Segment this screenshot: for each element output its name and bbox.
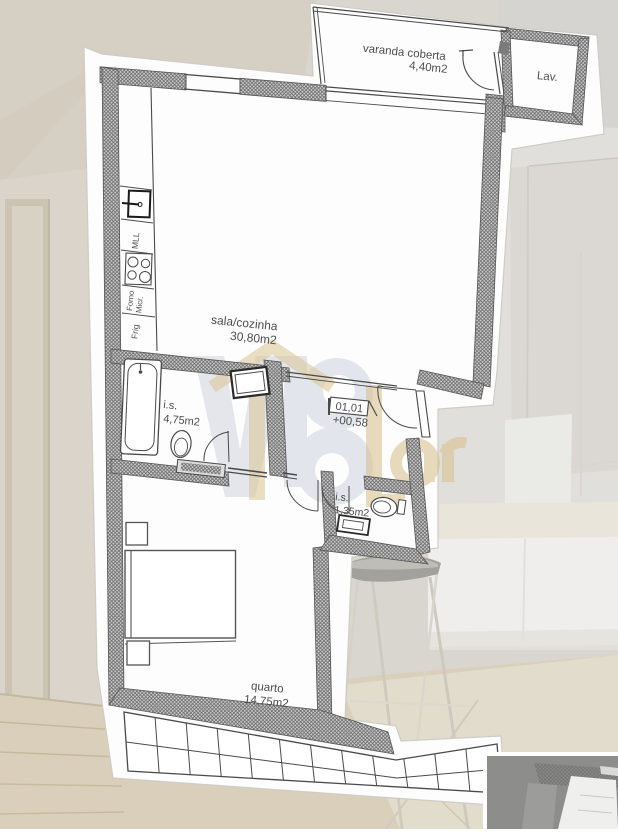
svg-text:MLL: MLL	[130, 232, 142, 250]
svg-text:i.s.: i.s.	[335, 491, 350, 504]
svg-text:i.s.: i.s.	[163, 399, 178, 412]
svg-text:Micr.: Micr.	[134, 296, 145, 313]
svg-text:Frig: Frig	[129, 324, 141, 340]
svg-text:Lav.: Lav.	[536, 70, 558, 84]
